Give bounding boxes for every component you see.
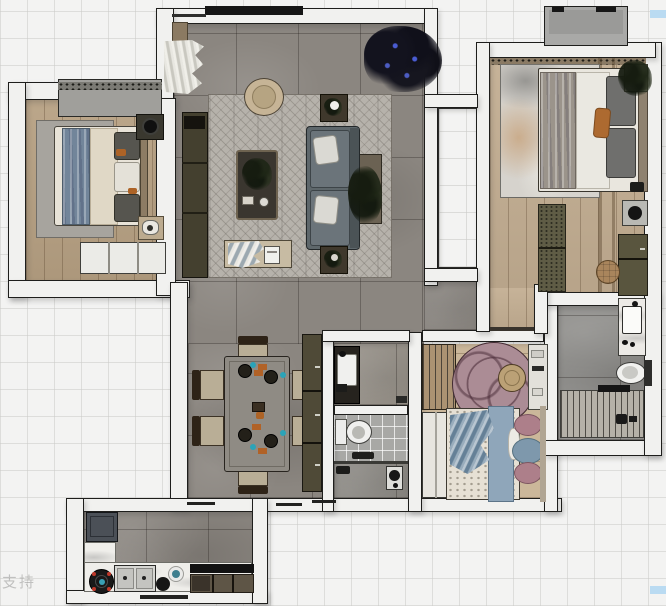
bay-window-mark-2: [596, 7, 616, 12]
dn-plate-4: [264, 434, 278, 448]
wall-lightwell-top: [424, 94, 478, 108]
door-line-entry-2: [312, 500, 336, 503]
kt-plate-inner: [172, 570, 180, 578]
kd-pouf-ring: [504, 370, 520, 386]
mb-lamp: [628, 206, 642, 220]
dn-center-piece: [252, 402, 265, 412]
lv-coffee-table-cup: [259, 197, 269, 207]
en-handheld-2: [629, 416, 637, 422]
dn-napkin-3: [252, 424, 261, 430]
en-sink: [622, 306, 642, 334]
dn-napkin-1: [254, 370, 263, 376]
lv-tv-seg-1: [182, 162, 208, 164]
kd-pillow-pink-2: [514, 462, 542, 484]
wc-toilet-inner: [352, 426, 365, 439]
en-toilet-tank: [644, 360, 652, 386]
wall-ensuite-bottom: [544, 440, 660, 456]
kt-drain-2: [142, 576, 146, 580]
shower-head: [389, 470, 400, 481]
kt-cabinet-divider-1: [212, 574, 214, 593]
lv-tv-cabinet: [182, 112, 208, 278]
kt-hood: [190, 564, 254, 573]
kt-drain-1: [123, 576, 127, 580]
kd-headboard: [540, 406, 546, 502]
bv-counter-item: [336, 384, 347, 392]
kt-cabinet-divider-2: [232, 574, 234, 593]
mb-wardrobe: [618, 234, 648, 296]
lv-sofa-pillow-1: [312, 134, 340, 165]
wall-bath-top: [322, 330, 410, 342]
dn-plate-2: [264, 370, 278, 384]
lv-sofa-pillow-2: [313, 195, 340, 225]
door-line-entry-1: [276, 503, 302, 506]
lb-headboard: [140, 126, 148, 226]
dn-cup-4: [280, 430, 286, 436]
window-line: [172, 14, 206, 17]
watermark-text: 支持: [2, 571, 36, 592]
dn-napkin-4: [258, 448, 267, 454]
mb-corner-plant: [618, 60, 652, 96]
kd-slat-cabinet: [422, 344, 456, 410]
dn-cup-1: [250, 362, 256, 368]
dn-cabinet-divider-1: [302, 390, 322, 392]
lv-sidetable-south-dot: [331, 254, 338, 261]
dn-plate-3: [238, 428, 252, 442]
lv-tv-box: [184, 116, 205, 129]
dn-chair-west1-back: [192, 370, 200, 400]
wall-kitchen-left: [66, 498, 84, 604]
en-shower-bar: [598, 385, 630, 392]
lb-dresser-divider-2: [137, 242, 139, 274]
lb-dresser: [80, 242, 166, 274]
dn-napkin-2: [258, 364, 267, 370]
mb-slippers: [630, 182, 644, 192]
window-lintel: [205, 6, 303, 15]
shower-hose: [393, 483, 398, 488]
floor-master-doorway: [490, 288, 534, 332]
kt-fridge-line: [90, 516, 114, 537]
blue-chip-top-right: [650, 10, 666, 18]
en-counter-item-1: [622, 340, 628, 345]
dn-chair-north-back: [238, 336, 268, 344]
wall-bath-internal: [334, 405, 408, 415]
kd-desk-item-2: [532, 366, 544, 371]
dn-cup-2: [280, 372, 286, 378]
dn-cabinet-handle-1: [315, 366, 320, 368]
wall-bedroom-left: [8, 82, 26, 298]
shower-threshold: [334, 461, 408, 464]
dn-center-accent: [256, 412, 264, 419]
lv-sidetable-north-flower: [330, 101, 339, 110]
en-handheld-1: [616, 414, 627, 424]
dn-chair-west1: [200, 370, 224, 400]
mb-orange-pillow: [593, 107, 612, 138]
kt-hob-knob-1: [92, 572, 96, 576]
en-faucet: [632, 301, 638, 307]
dn-cup-3: [250, 444, 256, 450]
kd-wardrobe-divider: [435, 412, 437, 498]
lb-pillow-accent-2: [128, 188, 137, 194]
mb-wardrobe-divider: [618, 258, 648, 260]
lv-armchair-seat: [252, 85, 276, 109]
bv-wall-item: [396, 396, 407, 403]
dn-tall-cabinet: [302, 334, 322, 492]
dn-chair-south-back: [238, 486, 268, 494]
lb-speaker: [142, 118, 159, 135]
kt-cabinet-door-dark: [192, 576, 210, 591]
kt-hob-center: [99, 579, 105, 585]
mb-pouf: [596, 260, 620, 284]
kt-pot: [156, 577, 170, 591]
en-counter-item-2: [630, 342, 635, 347]
lv-coffee-table-box: [242, 196, 254, 205]
dn-chair-west2: [200, 416, 224, 446]
wall-lightwell-bottom: [424, 268, 478, 282]
dn-cabinet-divider-2: [302, 442, 322, 444]
lv-plant-big: [364, 26, 442, 92]
lv-curtain: [164, 40, 204, 94]
lightwell: [438, 108, 478, 268]
bay-window-inner: [549, 10, 623, 34]
lb-wardrobe-top-trim: [58, 82, 162, 90]
mb-wardrobe-handle: [640, 248, 645, 250]
mb-bench-divider: [538, 247, 566, 249]
kd-desk-item-3: [532, 388, 543, 396]
kd-pillow-pink-1: [514, 414, 542, 436]
mb-duvet-gray: [540, 72, 576, 189]
kd-desk-item-1: [531, 350, 544, 358]
bv-sink: [337, 354, 357, 386]
kt-hob-knob-4: [107, 587, 111, 591]
blue-chip-bottom-right: [650, 586, 666, 594]
lv-plant-mid: [348, 166, 382, 224]
kitchen-window-line: [140, 595, 188, 599]
mb-pillow-2: [606, 128, 636, 178]
lv-coffee-table-plant: [242, 158, 272, 190]
shower-item: [336, 466, 350, 474]
lb-pillow-accent-1: [116, 149, 126, 156]
wc-floor-mat: [352, 452, 374, 459]
wall-master-left: [476, 42, 490, 332]
kt-hob-knob-3: [92, 587, 96, 591]
kt-hob-knob-2: [107, 572, 111, 576]
bv-faucet: [339, 351, 346, 357]
lv-tv-seg-2: [182, 212, 208, 214]
en-toilet-inner: [622, 366, 638, 379]
lv-bench-book: [264, 246, 280, 264]
floor-plan: 支持: [0, 0, 666, 606]
dn-cabinet-handle-2: [315, 414, 320, 416]
lb-dresser-divider-1: [108, 242, 110, 274]
lv-bench-book-line: [267, 251, 277, 253]
dn-chair-west2-back: [192, 416, 200, 446]
lb-bed-blue-throw: [62, 128, 90, 225]
dn-cabinet-handle-3: [315, 464, 320, 466]
bay-window-mark-1: [552, 7, 564, 12]
door-line-kitchen: [187, 502, 215, 505]
en-shower-floor: [560, 390, 644, 438]
master-door-threshold: [490, 327, 534, 331]
floor-hallway: [424, 282, 476, 330]
lb-tray-dot: [147, 225, 153, 231]
wall-kitchen-right: [252, 498, 268, 604]
lb-pillow-dark-2: [114, 194, 140, 222]
wall-bath-kids-divider: [408, 332, 422, 512]
wall-dining-left: [170, 282, 188, 510]
wall-bath-left: [322, 332, 334, 512]
